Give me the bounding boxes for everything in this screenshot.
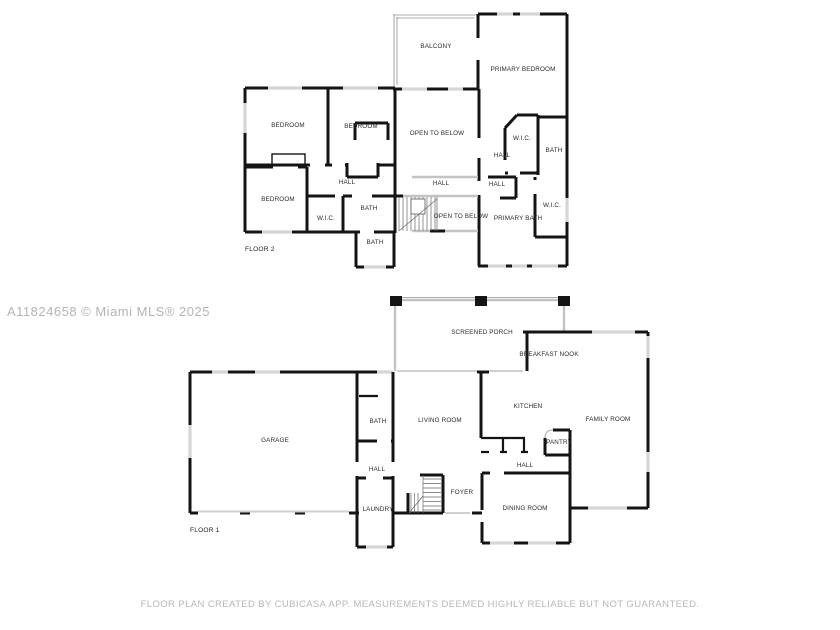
floor-plan-page: A11824658 © Miami MLS® 2025 bbox=[0, 0, 840, 630]
room-label-w-i-c-: W.I.C. bbox=[543, 202, 561, 209]
floor1-room-labels: SCREENED PORCHBREAKFAST NOOKGARAGEBATHLI… bbox=[261, 329, 630, 513]
room-label-bedroom: BEDROOM bbox=[344, 123, 378, 130]
room-label-breakfast-nook: BREAKFAST NOOK bbox=[519, 351, 579, 358]
room-label-bath: BATH bbox=[367, 239, 384, 246]
room-label-bath: BATH bbox=[370, 418, 387, 425]
floor2-stairs bbox=[399, 197, 437, 231]
room-label-family-room: FAMILY ROOM bbox=[586, 416, 631, 423]
room-label-balcony: BALCONY bbox=[420, 43, 452, 50]
room-label-bedroom: BEDROOM bbox=[271, 122, 305, 129]
room-label-open-to-below: OPEN TO BELOW bbox=[434, 213, 489, 220]
room-label-hall: HALL bbox=[494, 152, 511, 159]
room-label-foyer: FOYER bbox=[451, 489, 474, 496]
room-label-hall: HALL bbox=[489, 181, 506, 188]
room-label-garage: GARAGE bbox=[261, 437, 289, 444]
floor1-stairs bbox=[409, 475, 441, 513]
room-label-bedroom: BEDROOM bbox=[261, 196, 295, 203]
room-label-w-i-c-: W.I.C. bbox=[317, 215, 335, 222]
room-label-dining-room: DINING ROOM bbox=[502, 505, 547, 512]
room-label-hall: HALL bbox=[369, 466, 386, 473]
room-label-open-to-below: OPEN TO BELOW bbox=[410, 130, 465, 137]
floor2-label: FLOOR 2 bbox=[245, 246, 275, 253]
room-label-bath: BATH bbox=[546, 147, 563, 154]
disclaimer-text: FLOOR PLAN CREATED BY CUBICASA APP. MEAS… bbox=[0, 599, 840, 610]
room-label-hall: HALL bbox=[517, 462, 534, 469]
room-label-bath: BATH bbox=[361, 205, 378, 212]
room-label-living-room: LIVING ROOM bbox=[418, 417, 462, 424]
room-label-primary-bedroom: PRIMARY BEDROOM bbox=[491, 66, 556, 73]
floor-plan-drawing: FLOOR 2 BALCONYPRIMARY BEDROOMBEDROOMBED… bbox=[0, 0, 840, 630]
room-label-hall: HALL bbox=[339, 179, 356, 186]
room-label-screened-porch: SCREENED PORCH bbox=[451, 329, 513, 336]
room-label-laundry: LAUNDRY bbox=[362, 506, 394, 513]
room-label-pantry: PANTRY bbox=[546, 439, 573, 446]
floor1-label: FLOOR 1 bbox=[190, 527, 220, 534]
room-label-hall: HALL bbox=[433, 180, 450, 187]
room-label-primary-bath: PRIMARY BATH bbox=[494, 215, 543, 222]
room-label-kitchen: KITCHEN bbox=[514, 403, 543, 410]
room-label-w-i-c-: W.I.C. bbox=[513, 135, 531, 142]
